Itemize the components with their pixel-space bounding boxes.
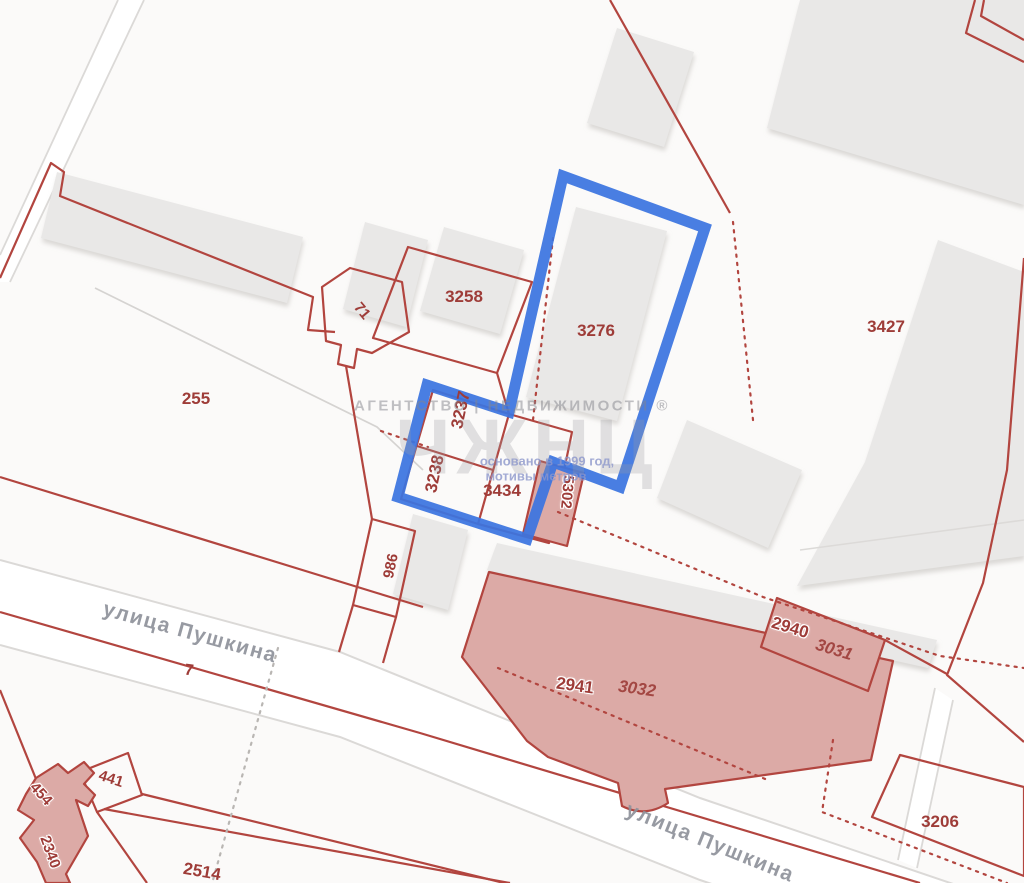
parcel-label-3258: 3258	[445, 287, 483, 307]
parcel-label-3276: 3276	[577, 321, 615, 341]
parcel-label-3206: 3206	[921, 812, 959, 832]
watermark-slogan-line: мотивы метров	[485, 469, 586, 484]
parcel-label-3427: 3427	[867, 317, 905, 337]
parcel-label-255: 255	[182, 389, 210, 409]
watermark-founded-line: основано в 1999 год,	[480, 454, 614, 469]
cadastral-map[interactable]: 255 71 3258 3276 3427 3237 3238 3434 530…	[0, 0, 1024, 883]
